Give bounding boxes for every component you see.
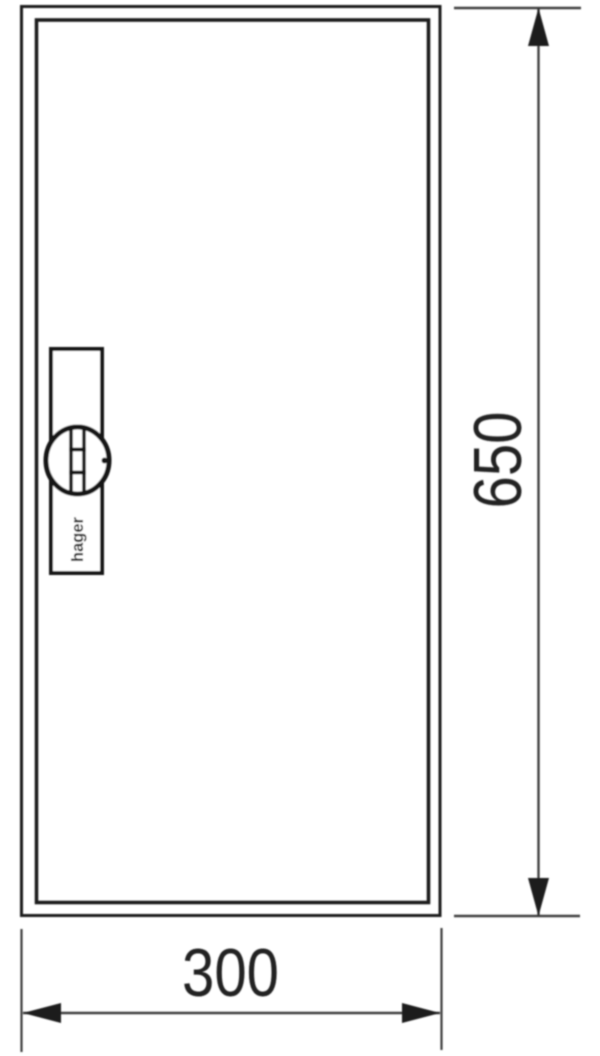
svg-text:hager: hager [69,516,87,562]
svg-text:650: 650 [461,412,536,509]
svg-text:300: 300 [182,936,279,1011]
